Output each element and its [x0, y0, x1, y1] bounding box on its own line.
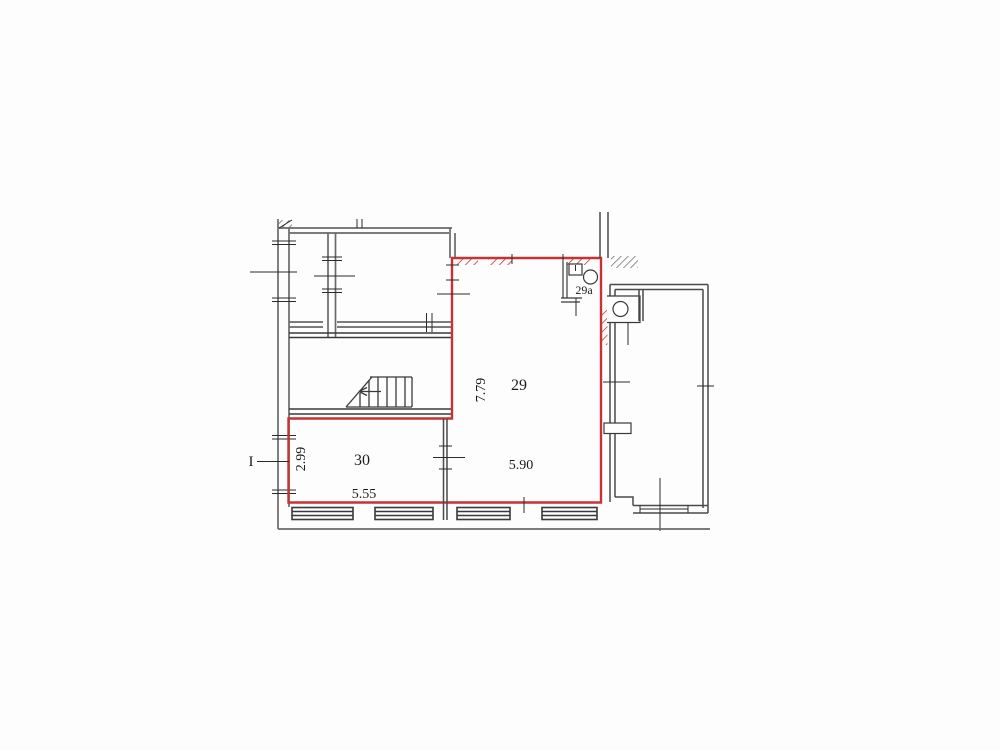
floor-plan-canvas: I 30 5.55 2.99 29 7.79 5.90 29a	[0, 0, 1000, 750]
upper-left-rooms	[289, 233, 452, 337]
wall-pier	[604, 423, 631, 434]
room-30-number: 30	[354, 452, 370, 469]
partition-wall	[433, 419, 465, 521]
hatch-segment	[602, 310, 608, 345]
junction-hatch	[611, 256, 638, 268]
hatch-segment	[456, 259, 478, 266]
floor-plan-svg: I 30 5.55 2.99 29 7.79 5.90 29a	[0, 0, 1000, 750]
partition-dimension-ticks	[433, 446, 465, 469]
staircase-room-walls	[289, 333, 452, 414]
right-room	[600, 212, 714, 531]
bottom-windows	[278, 508, 710, 530]
toilet-symbol	[584, 270, 598, 284]
dim-30-width: 5.55	[352, 487, 377, 502]
left-wall-window-ticks	[272, 241, 296, 494]
window-symbol	[375, 508, 433, 520]
window-symbol	[542, 508, 597, 520]
sink-bowl-symbol	[613, 302, 628, 317]
room-29a-number: 29a	[575, 283, 593, 297]
outer-walls	[250, 219, 455, 529]
room-29-number: 29	[511, 377, 527, 394]
dim-30-depth: 2.99	[294, 447, 309, 472]
top-wall-tick	[357, 219, 362, 228]
interior-wall-ticks	[314, 257, 355, 293]
window-symbol	[457, 508, 510, 520]
staircase	[346, 377, 412, 407]
section-marker-label: I	[249, 454, 254, 470]
hatch-segment	[488, 259, 512, 266]
window-symbol	[292, 508, 353, 520]
labels: I 30 5.55 2.99 29 7.79 5.90 29a	[249, 283, 594, 502]
dim-29-width: 5.90	[509, 458, 534, 473]
dim-29-depth: 7.79	[474, 378, 489, 403]
